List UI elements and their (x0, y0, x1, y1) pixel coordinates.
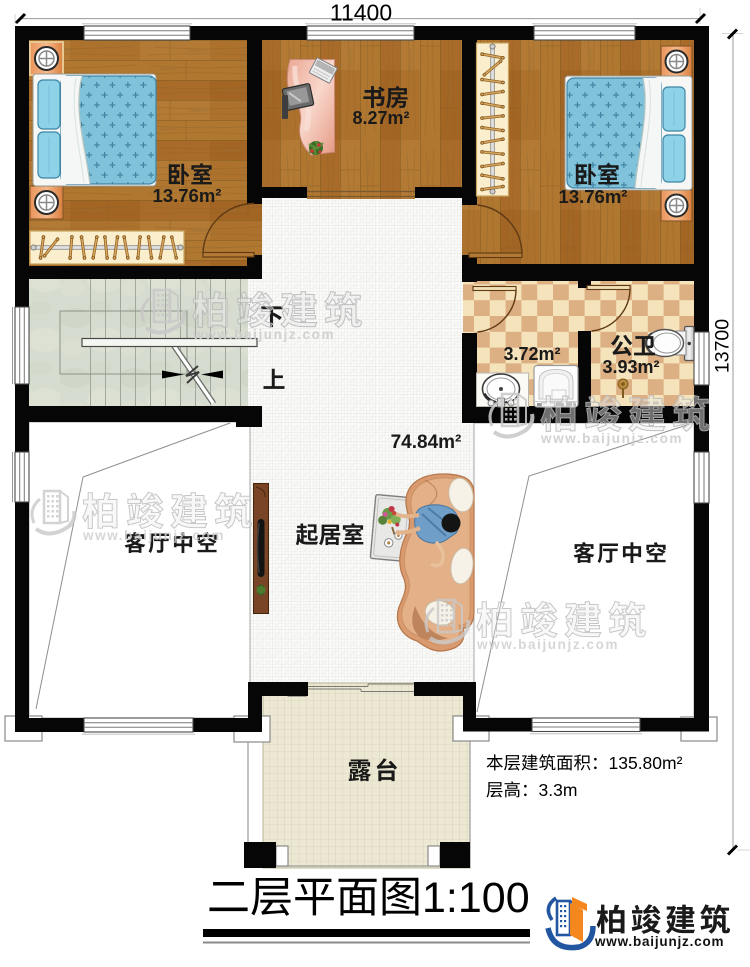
svg-text:13.76m²: 13.76m² (559, 186, 628, 207)
svg-text:3.93m²: 3.93m² (602, 357, 659, 377)
svg-text:11400: 11400 (330, 0, 392, 26)
svg-text:1:100: 1:100 (422, 874, 530, 922)
svg-text:3.3m: 3.3m (539, 780, 578, 800)
svg-text:13700: 13700 (712, 319, 734, 373)
svg-text:135.80m²: 135.80m² (609, 753, 683, 773)
svg-text:www.baijunjz.com: www.baijunjz.com (594, 934, 724, 949)
svg-text:3.72m²: 3.72m² (503, 344, 560, 364)
svg-text:13.76m²: 13.76m² (153, 185, 222, 206)
svg-text:74.84m²: 74.84m² (391, 432, 462, 453)
svg-text:8.27m²: 8.27m² (352, 108, 409, 128)
